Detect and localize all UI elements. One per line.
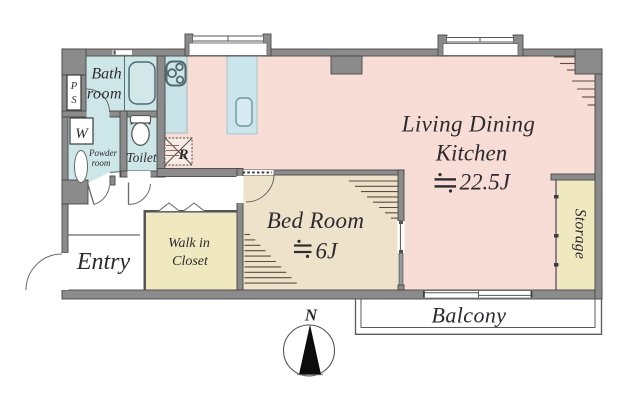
svg-text:S: S	[71, 95, 77, 106]
svg-text:W: W	[75, 126, 89, 142]
svg-text:Powder: Powder	[88, 148, 117, 158]
svg-text:room: room	[92, 158, 111, 168]
svg-text:Storage: Storage	[572, 209, 589, 259]
svg-text:room: room	[87, 86, 122, 103]
svg-text:Bath: Bath	[91, 66, 121, 83]
svg-text:Living Dining: Living Dining	[401, 112, 536, 137]
svg-text:22.5J: 22.5J	[460, 170, 512, 195]
svg-text:Walk in: Walk in	[168, 236, 210, 251]
svg-text:6J: 6J	[316, 239, 340, 264]
svg-text:R: R	[177, 147, 188, 163]
svg-text:Bed Room: Bed Room	[267, 208, 365, 233]
svg-text:Toilet: Toilet	[126, 150, 158, 165]
svg-text:Entry: Entry	[76, 249, 131, 275]
svg-text:N: N	[304, 306, 318, 325]
svg-text:Kitchen: Kitchen	[435, 141, 508, 166]
svg-text:P: P	[70, 81, 78, 92]
svg-text:Closet: Closet	[172, 254, 209, 269]
svg-text:Balcony: Balcony	[432, 303, 507, 328]
